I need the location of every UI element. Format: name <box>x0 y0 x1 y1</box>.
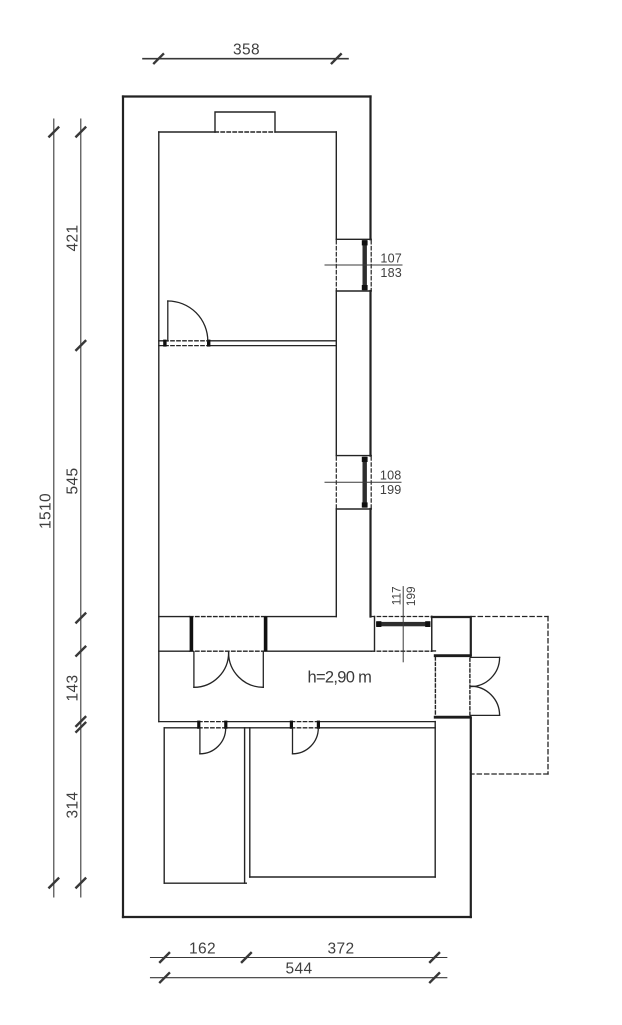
svg-text:545: 545 <box>65 467 82 494</box>
svg-text:h=2,90 m: h=2,90 m <box>308 669 372 687</box>
svg-text:143: 143 <box>65 674 82 701</box>
svg-text:421: 421 <box>65 224 82 251</box>
svg-text:117: 117 <box>390 586 404 605</box>
svg-text:199: 199 <box>380 483 402 497</box>
svg-text:183: 183 <box>380 266 402 280</box>
svg-text:314: 314 <box>65 791 82 818</box>
svg-text:358: 358 <box>233 42 260 59</box>
svg-text:199: 199 <box>404 586 418 606</box>
svg-text:372: 372 <box>327 941 354 958</box>
svg-text:107: 107 <box>380 251 402 265</box>
svg-text:1510: 1510 <box>38 493 55 529</box>
svg-text:544: 544 <box>285 960 312 977</box>
svg-text:162: 162 <box>189 941 216 958</box>
svg-text:108: 108 <box>380 469 402 483</box>
